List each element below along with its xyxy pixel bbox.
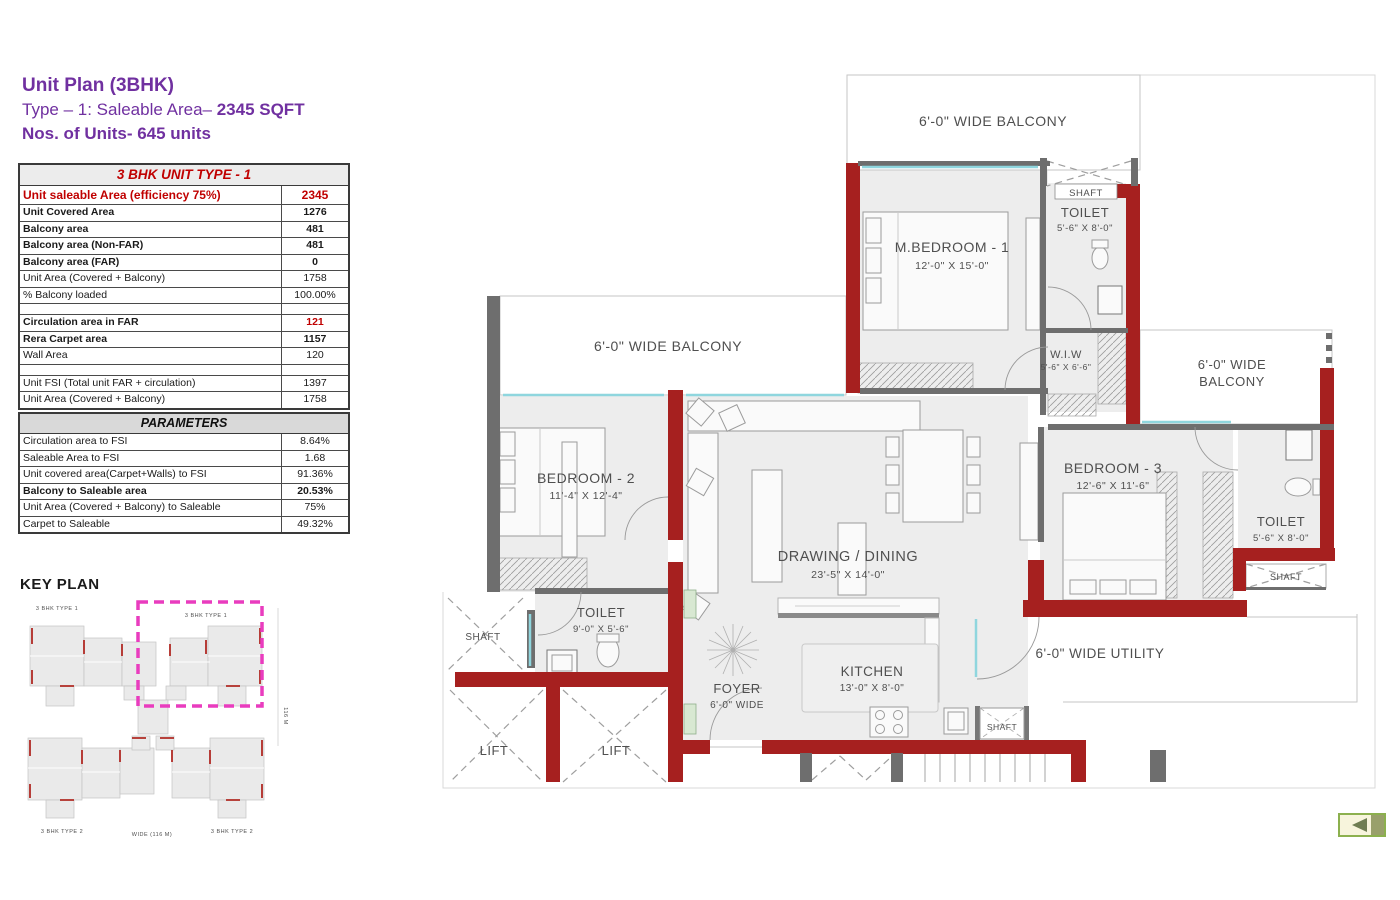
unit-area-table: 3 BHK UNIT TYPE - 1 Unit saleable Area (… xyxy=(18,163,350,410)
row-value: 75% xyxy=(281,500,348,516)
row-label: Balcony area (FAR) xyxy=(20,255,281,271)
wiw-label: W.I.W xyxy=(1050,349,1082,361)
page-title: Unit Plan (3BHK) xyxy=(22,74,305,98)
bedroom2-dims: 11'-4" X 12'-4" xyxy=(549,490,622,502)
title-block: Unit Plan (3BHK) Type – 1: Saleable Area… xyxy=(22,74,305,146)
balcony-left-label: 6'-0" WIDE BALCONY xyxy=(594,338,742,354)
row-label: Balcony to Saleable area xyxy=(20,484,281,500)
wiw-dims: 5'-6" X 6'-6" xyxy=(1041,362,1092,372)
table-row xyxy=(20,304,348,315)
table-row: Circulation area in FAR121 xyxy=(20,315,348,332)
row-label: Rera Carpet area xyxy=(20,332,281,348)
toilet-bottom-label: TOILET xyxy=(577,605,625,620)
row-label: Unit Area (Covered + Balcony) to Saleabl… xyxy=(20,500,281,516)
unit-plan-sheet: Unit Plan (3BHK) Type – 1: Saleable Area… xyxy=(0,0,1400,900)
balcony-top-label: 6'-0" WIDE BALCONY xyxy=(919,113,1067,129)
row-label: Balcony area xyxy=(20,222,281,238)
key-plan-dim-bottom: WIDE (116 M) xyxy=(132,832,172,838)
row-label: Unit saleable Area (efficiency 75%) xyxy=(20,186,281,204)
balcony-right-label-1: 6'-0" WIDE xyxy=(1198,357,1266,372)
row-label: Saleable Area to FSI xyxy=(20,451,281,467)
row-label: Wall Area xyxy=(20,348,281,364)
toilet-right-dims: 5'-6" X 8'-0" xyxy=(1253,533,1309,544)
row-value: 1397 xyxy=(281,376,348,392)
m-bedroom-dims: 12'-0" X 15'-0" xyxy=(915,260,989,272)
balcony-right-label-2: BALCONY xyxy=(1199,374,1265,389)
lift-left-label: LIFT xyxy=(480,743,509,758)
table-row: Carpet to Saleable49.32% xyxy=(20,517,348,533)
row-value: 49.32% xyxy=(281,517,348,533)
table-row: Balcony to Saleable area20.53% xyxy=(20,484,348,501)
row-value: 2345 xyxy=(281,186,348,204)
row-label: Circulation area in FAR xyxy=(20,315,281,331)
table-row: Wall Area120 xyxy=(20,348,348,365)
table-row: Balcony area (FAR)0 xyxy=(20,255,348,272)
row-label: Unit Area (Covered + Balcony) xyxy=(20,392,281,408)
table-row xyxy=(20,365,348,376)
drawing-dining-dims: 23'-5" X 14'-0" xyxy=(811,569,885,581)
bedroom3-dims: 12'-6" X 11'-6" xyxy=(1076,480,1149,492)
table-row: Circulation area to FSI8.64% xyxy=(20,434,348,451)
table-row: Unit Area (Covered + Balcony) to Saleabl… xyxy=(20,500,348,517)
row-label: Unit FSI (Total unit FAR + circulation) xyxy=(20,376,281,392)
table-row: % Balcony loaded100.00% xyxy=(20,288,348,305)
row-value: 0 xyxy=(281,255,348,271)
row-value: 20.53% xyxy=(281,484,348,500)
toilet-top-label: TOILET xyxy=(1061,205,1109,220)
bedroom2-label: BEDROOM - 2 xyxy=(537,470,635,486)
row-value: 121 xyxy=(281,315,348,331)
row-value: 481 xyxy=(281,238,348,254)
kitchen-dims: 13'-0" X 8'-0" xyxy=(840,683,905,694)
row-label: Unit Covered Area xyxy=(20,205,281,221)
drawing-dining-label: DRAWING / DINING xyxy=(778,549,918,565)
key-plan-label-type1-right: 3 BHK TYPE 1 xyxy=(185,613,227,619)
row-value: 1758 xyxy=(281,392,348,408)
table-row: Unit Area (Covered + Balcony)1758 xyxy=(20,271,348,288)
bedroom3-label: BEDROOM - 3 xyxy=(1064,460,1162,476)
row-value: 481 xyxy=(281,222,348,238)
foyer-label: FOYER xyxy=(713,681,760,696)
shaft-bottom-label: SHAFT xyxy=(987,722,1017,732)
shaft-right-label: SHAFT xyxy=(1270,572,1302,582)
row-label: Carpet to Saleable xyxy=(20,517,281,533)
table-row: Unit FSI (Total unit FAR + circulation)1… xyxy=(20,376,348,393)
row-value: 91.36% xyxy=(281,467,348,483)
key-plan-label-type2-left: 3 BHK TYPE 2 xyxy=(41,829,83,835)
table-row: Saleable Area to FSI1.68 xyxy=(20,451,348,468)
table-row: Unit saleable Area (efficiency 75%)2345 xyxy=(20,186,348,205)
row-label: Balcony area (Non-FAR) xyxy=(20,238,281,254)
table-row: Unit Covered Area1276 xyxy=(20,205,348,222)
back-button[interactable] xyxy=(1338,813,1386,837)
back-button-band xyxy=(1371,815,1384,835)
table-row: Balcony area481 xyxy=(20,222,348,239)
row-value: 1.68 xyxy=(281,451,348,467)
row-label: Circulation area to FSI xyxy=(20,434,281,450)
kitchen-label: KITCHEN xyxy=(841,664,904,679)
table-row: Unit covered area(Carpet+Walls) to FSI91… xyxy=(20,467,348,484)
row-label: Unit Area (Covered + Balcony) xyxy=(20,271,281,287)
lift-right-label: LIFT xyxy=(602,743,631,758)
row-value: 100.00% xyxy=(281,288,348,304)
saleable-area-value: 2345 SQFT xyxy=(217,100,305,119)
key-plan-label-type1-left: 3 BHK TYPE 1 xyxy=(36,606,78,612)
table-row: Rera Carpet area1157 xyxy=(20,332,348,349)
subtitle-type: Type – 1: Saleable Area– 2345 SQFT xyxy=(22,98,305,122)
parameters-table: PARAMETERS Circulation area to FSI8.64% … xyxy=(18,412,350,534)
units-count: Nos. of Units- 645 units xyxy=(22,122,305,146)
row-value: 1758 xyxy=(281,271,348,287)
toilet-top-dims: 5'-6" X 8'-0" xyxy=(1057,223,1113,234)
parameters-title: PARAMETERS xyxy=(20,414,348,434)
foyer-dims: 6'-0" WIDE xyxy=(710,700,764,711)
key-plan-thumbnail: 3 BHK TYPE 1 3 BHK TYPE 1 3 BHK TYPE 2 3… xyxy=(20,596,290,844)
toilet-right-label: TOILET xyxy=(1257,514,1305,529)
row-label: % Balcony loaded xyxy=(20,288,281,304)
key-plan-label-type2-right: 3 BHK TYPE 2 xyxy=(211,829,253,835)
shaft-top-label: SHAFT xyxy=(1069,188,1103,199)
back-arrow-icon xyxy=(1352,818,1367,832)
shaft-left-label: SHAFT xyxy=(465,632,500,643)
row-value: 1157 xyxy=(281,332,348,348)
row-value: 120 xyxy=(281,348,348,364)
row-label: Unit covered area(Carpet+Walls) to FSI xyxy=(20,467,281,483)
toilet-bottom-dims: 9'-0" X 5'-6" xyxy=(573,624,629,635)
m-bedroom-label: M.BEDROOM - 1 xyxy=(895,239,1010,255)
key-plan-dim-right: 116 M xyxy=(282,707,288,724)
table-row: Unit Area (Covered + Balcony)1758 xyxy=(20,392,348,408)
unit-table-title: 3 BHK UNIT TYPE - 1 xyxy=(20,165,348,186)
key-plan-title: KEY PLAN xyxy=(20,576,100,593)
utility-label: 6'-0" WIDE UTILITY xyxy=(1036,646,1165,661)
floor-plan: 6'-0" WIDE BALCONY M.BEDROOM - 1 12'-0" … xyxy=(440,60,1385,800)
key-plan-blocks xyxy=(28,626,264,818)
row-value: 1276 xyxy=(281,205,348,221)
stairs xyxy=(925,752,1045,782)
table-row: Balcony area (Non-FAR)481 xyxy=(20,238,348,255)
row-value: 8.64% xyxy=(281,434,348,450)
